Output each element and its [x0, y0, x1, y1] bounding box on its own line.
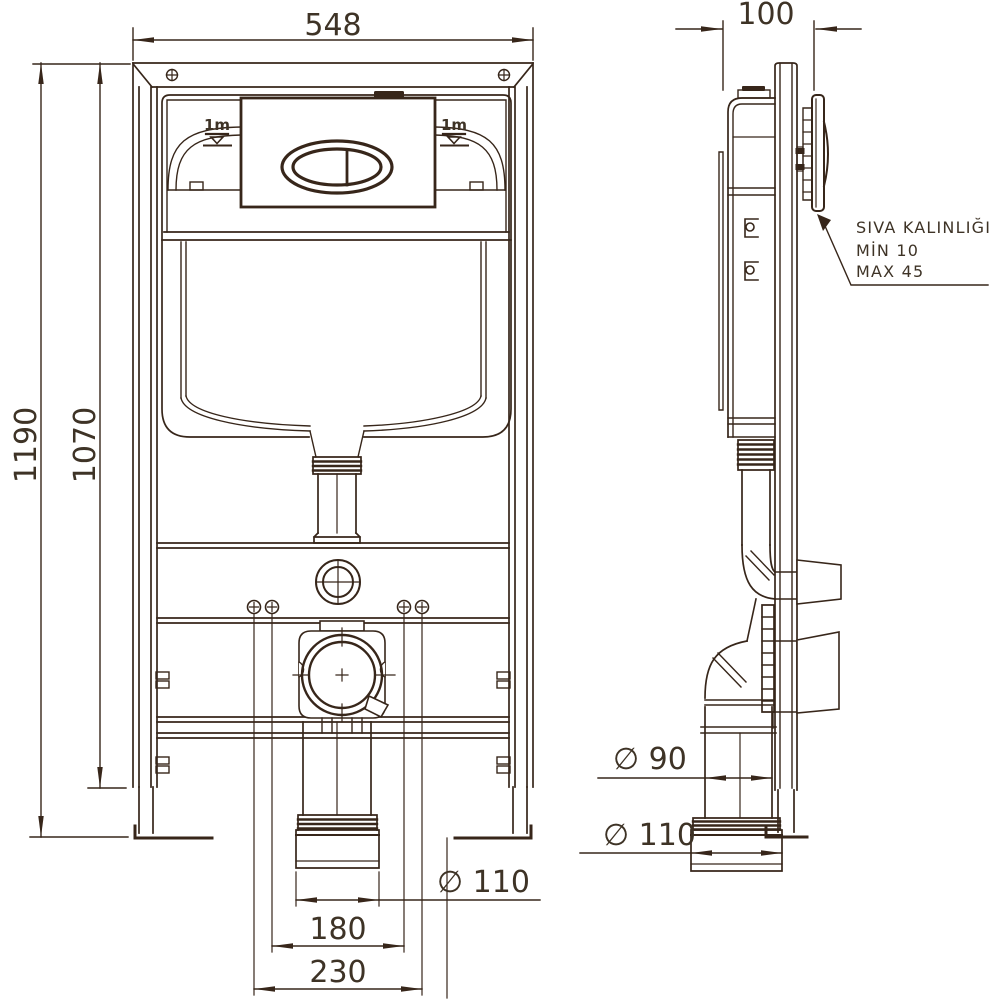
- plaster-note-line3: MAX 45: [856, 262, 924, 281]
- dimension-dia-90: ∅ 90: [598, 742, 772, 778]
- dimension-height-1190: 1190: [9, 63, 44, 837]
- plaster-thickness-note: SIVA KALINLIĞI MİN 10 MAX 45: [817, 214, 991, 285]
- water-level-icon-left: 1m: [204, 116, 231, 146]
- screw-icon-right: [499, 70, 510, 81]
- dim-1190-label: 1190: [9, 407, 44, 483]
- side-view: SIVA KALINLIĞI MİN 10 MAX 45 100 ∅ 90 ∅ …: [580, 0, 991, 871]
- dim-dia110-side-label: ∅ 110: [603, 818, 696, 853]
- floor-drain-pipe: [296, 722, 379, 868]
- front-view: 1m 1m: [9, 8, 540, 998]
- screw-icon-left: [167, 70, 178, 81]
- hose-clamps: [745, 219, 758, 280]
- dim-dia90-label: ∅ 90: [613, 742, 687, 777]
- flush-plate-window: [241, 91, 435, 207]
- dimension-height-1070: 1070: [68, 63, 103, 788]
- dim-230-label: 230: [309, 955, 366, 990]
- dim-1070-label: 1070: [68, 407, 103, 483]
- plaster-note-line2: MİN 10: [856, 241, 919, 260]
- dim-180-label: 180: [309, 912, 366, 947]
- dimension-depth-100: 100: [676, 0, 861, 90]
- pan-mounting-brackets: [797, 560, 841, 713]
- cistern-side: [728, 86, 775, 437]
- dim-100-label: 100: [737, 0, 794, 32]
- dim-dia110-front-label: ∅ 110: [437, 865, 530, 900]
- water-level-icon-right: 1m: [441, 116, 468, 146]
- wc-frame-installation-drawing: 1m 1m: [0, 0, 1000, 1000]
- drain-outlet: [293, 621, 395, 733]
- level-mark-left-label: 1m: [204, 116, 230, 134]
- flush-valve-pipe: [310, 431, 364, 543]
- flush-plate-side: [796, 95, 829, 211]
- dim-548-label: 548: [304, 8, 361, 43]
- dimension-outlet-dia-front: ∅ 110: [296, 865, 540, 906]
- technical-drawing-page: 1m 1m: [0, 0, 1000, 1000]
- level-mark-right-label: 1m: [441, 116, 467, 134]
- water-inlet-port: [316, 560, 360, 604]
- leader-arrow-icon: [817, 214, 831, 231]
- box-tab: [374, 91, 404, 99]
- plaster-note-line1: SIVA KALINLIĞI: [856, 218, 991, 237]
- dimension-width-548: 548: [133, 8, 533, 60]
- flush-pipe-side: [738, 440, 797, 712]
